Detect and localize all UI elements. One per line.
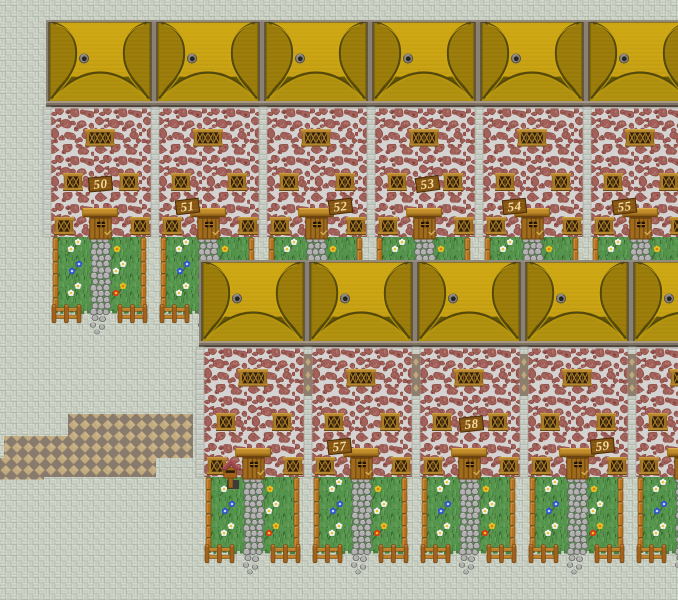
svg-text:58: 58 — [464, 416, 479, 432]
svg-text:51: 51 — [180, 198, 196, 215]
svg-text:53: 53 — [419, 175, 435, 192]
svg-text:57: 57 — [332, 438, 347, 454]
svg-text:50: 50 — [93, 176, 108, 192]
svg-text:59: 59 — [595, 438, 610, 454]
svg-text:52: 52 — [333, 198, 349, 215]
svg-text:55: 55 — [617, 198, 633, 215]
svg-text:54: 54 — [507, 198, 522, 214]
